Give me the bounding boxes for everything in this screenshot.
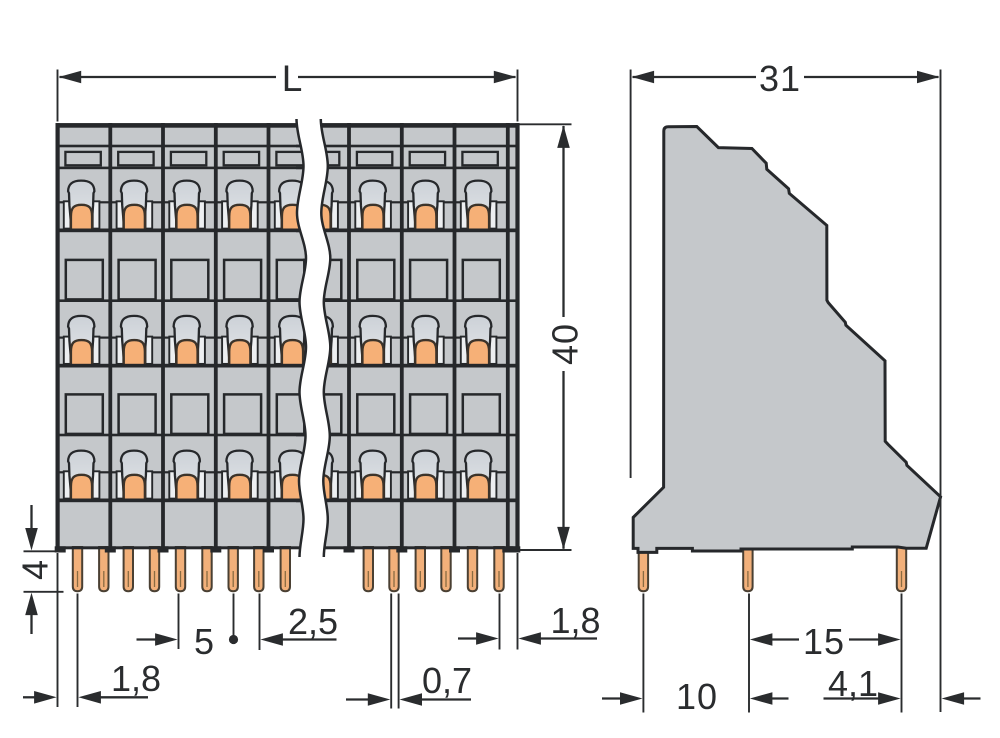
svg-text:5: 5 xyxy=(194,621,214,662)
svg-text:2,5: 2,5 xyxy=(288,601,338,642)
svg-text:1,8: 1,8 xyxy=(550,600,600,641)
svg-text:L: L xyxy=(282,58,303,99)
svg-text:4: 4 xyxy=(14,560,55,580)
svg-text:10: 10 xyxy=(676,676,718,717)
svg-text:4,1: 4,1 xyxy=(828,663,878,704)
svg-text:31: 31 xyxy=(759,58,801,99)
svg-text:15: 15 xyxy=(803,621,845,662)
svg-text:40: 40 xyxy=(544,323,585,365)
svg-text:0,7: 0,7 xyxy=(422,660,472,701)
svg-text:1,8: 1,8 xyxy=(111,658,161,699)
